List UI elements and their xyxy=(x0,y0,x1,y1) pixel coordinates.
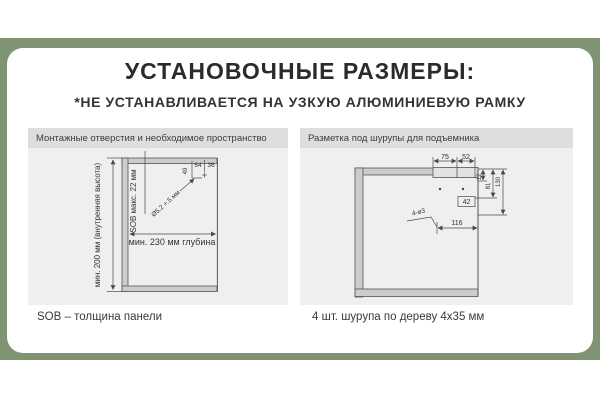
mounting-holes-diagram: мин. 200 мм (внутренняя высота) SOB макс… xyxy=(28,148,288,305)
dim-42-box: 42 xyxy=(458,197,475,207)
screw-holes xyxy=(439,188,464,190)
sob-caption: SOB – толщина панели xyxy=(37,311,162,323)
page: УСТАНОВОЧНЫЕ РАЗМЕРЫ: *НЕ УСТАНАВЛИВАЕТС… xyxy=(0,0,600,400)
dim-52-label: 52 xyxy=(462,154,470,161)
cabinet-top-view xyxy=(355,168,478,298)
screw-marking-panel: Разметка под шурупы для подъемника xyxy=(300,128,573,305)
holes-count-label: 4-ø3 xyxy=(411,207,426,217)
content-card: УСТАНОВОЧНЫЕ РАЗМЕРЫ: *НЕ УСТАНАВЛИВАЕТС… xyxy=(7,48,593,353)
dim-42-label: 42 xyxy=(463,199,471,206)
hole-position-detail: 49 64 36 Ø5.2 +.5 мм xyxy=(150,160,215,218)
screws-caption: 4 шт. шурупа по дереву 4х35 мм xyxy=(312,311,484,323)
depth-dimension: мин. 230 мм глубина xyxy=(129,234,216,247)
dim-130-label: 130 xyxy=(496,176,502,187)
hole-diameter-label: Ø5.2 +.5 мм xyxy=(150,189,182,219)
side-dimensions: 12 81 130 xyxy=(475,169,507,215)
dim-36-label: 36 xyxy=(207,162,215,169)
screw-marking-diagram: 75 52 12 81 130 xyxy=(300,148,573,305)
dim-116-label: 116 xyxy=(451,220,462,227)
dim-75-label: 75 xyxy=(441,154,449,161)
page-subtitle: *НЕ УСТАНАВЛИВАЕТСЯ НА УЗКУЮ АЛЮМИНИЕВУЮ… xyxy=(7,94,593,110)
mounting-holes-panel-header: Монтажные отверстия и необходимое простр… xyxy=(28,128,288,148)
sob-dimension-label: SOB макс. 22 мм xyxy=(129,169,138,232)
mounting-holes-panel: Монтажные отверстия и необходимое простр… xyxy=(28,128,288,305)
screw-marking-panel-header: Разметка под шурупы для подъемника xyxy=(300,128,573,148)
height-dimension-label: мин. 200 мм (внутренняя высота) xyxy=(93,163,102,288)
page-title: УСТАНОВОЧНЫЕ РАЗМЕРЫ: xyxy=(7,58,593,85)
dim-12-label: 12 xyxy=(477,173,483,180)
dim-81-label: 81 xyxy=(486,182,492,189)
dim-116: 116 xyxy=(437,220,477,234)
dim-64-label: 64 xyxy=(194,162,202,169)
dim-49-label: 49 xyxy=(183,167,189,174)
depth-dimension-label: мин. 230 мм глубина xyxy=(129,237,216,247)
holes-count-leader: 4-ø3 xyxy=(407,207,437,227)
height-dimension: мин. 200 мм (внутренняя высота) xyxy=(93,158,122,292)
